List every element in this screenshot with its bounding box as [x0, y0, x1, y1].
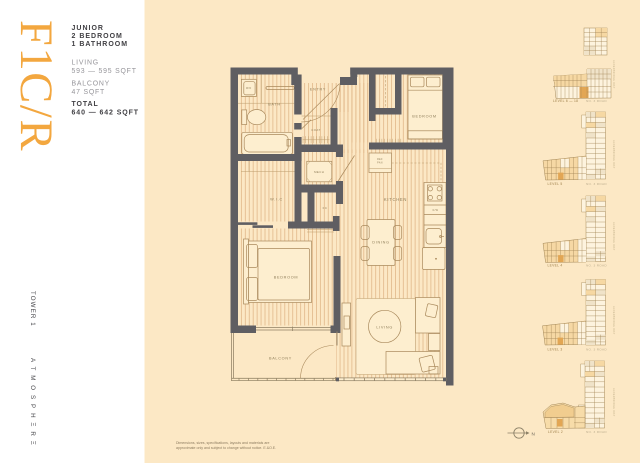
svg-text:REF: REF: [377, 159, 383, 161]
svg-text:PAN: PAN: [377, 161, 383, 164]
svg-text:ATMOSPHΞRΞ: ATMOSPHΞRΞ: [29, 358, 36, 450]
svg-text:LEVEL 2: LEVEL 2: [548, 430, 563, 434]
svg-text:BATH: BATH: [268, 102, 281, 106]
svg-text:ALDERBRIDGE WAY: ALDERBRIDGE WAY: [612, 60, 615, 89]
svg-text:F1C/R: F1C/R: [10, 20, 61, 152]
svg-text:D/W: D/W: [433, 210, 439, 212]
svg-text:2 BEDROOM: 2 BEDROOM: [72, 33, 123, 40]
svg-text:KITCHEN: KITCHEN: [384, 197, 407, 202]
svg-text:ALDERBRIDGE WAY: ALDERBRIDGE WAY: [612, 140, 615, 169]
svg-text:LEVEL 6 — 18: LEVEL 6 — 18: [553, 99, 578, 103]
svg-text:approximate only and subject t: approximate only and subject to change w…: [176, 446, 276, 450]
svg-text:W.I.C: W.I.C: [270, 197, 283, 201]
svg-text:JUNIOR: JUNIOR: [72, 25, 104, 32]
svg-text:NO. 3 ROAD: NO. 3 ROAD: [586, 182, 607, 186]
svg-text:LIVING: LIVING: [376, 326, 393, 330]
svg-text:NO. 3 ROAD: NO. 3 ROAD: [586, 99, 607, 103]
svg-text:TOTAL: TOTAL: [72, 101, 99, 108]
svg-text:BALCONY: BALCONY: [72, 81, 111, 88]
svg-text:BEDROOM: BEDROOM: [412, 114, 437, 118]
svg-text:NO. 3 ROAD: NO. 3 ROAD: [586, 264, 607, 268]
svg-text:LIVING: LIVING: [72, 60, 99, 67]
svg-text:N: N: [532, 431, 535, 436]
svg-text:LEVEL 3: LEVEL 3: [548, 348, 563, 352]
svg-text:47 SQFT: 47 SQFT: [72, 89, 106, 96]
svg-text:Dimensions, sizes, specificati: Dimensions, sizes, specifications, layou…: [176, 441, 269, 445]
svg-text:1 BATHROOM: 1 BATHROOM: [72, 41, 129, 48]
svg-text:LEVEL 4: LEVEL 4: [548, 264, 563, 268]
svg-text:593 — 595 SQFT: 593 — 595 SQFT: [72, 68, 137, 75]
svg-text:FC: FC: [323, 206, 328, 210]
svg-text:BEDROOM: BEDROOM: [274, 275, 299, 279]
svg-text:LEVEL 5: LEVEL 5: [548, 182, 563, 186]
svg-text:BALCONY: BALCONY: [269, 356, 292, 360]
svg-text:ALDERBRIDGE WAY: ALDERBRIDGE WAY: [612, 388, 615, 417]
svg-text:640 — 642 SQFT: 640 — 642 SQFT: [72, 110, 139, 117]
svg-text:DINING: DINING: [372, 240, 390, 244]
svg-text:ENTRY: ENTRY: [310, 87, 326, 91]
svg-text:NO. 3 ROAD: NO. 3 ROAD: [586, 348, 607, 352]
svg-text:COAT: COAT: [311, 128, 320, 132]
svg-text:ALDERBRIDGE WAY: ALDERBRIDGE WAY: [612, 222, 615, 251]
svg-text:TOWER 1: TOWER 1: [29, 291, 36, 327]
svg-text:W/D: W/D: [246, 88, 252, 90]
svg-text:NO. 3 ROAD: NO. 3 ROAD: [586, 430, 607, 434]
svg-text:ALDERBRIDGE WAY: ALDERBRIDGE WAY: [612, 306, 615, 335]
svg-text:MECH: MECH: [314, 170, 324, 174]
